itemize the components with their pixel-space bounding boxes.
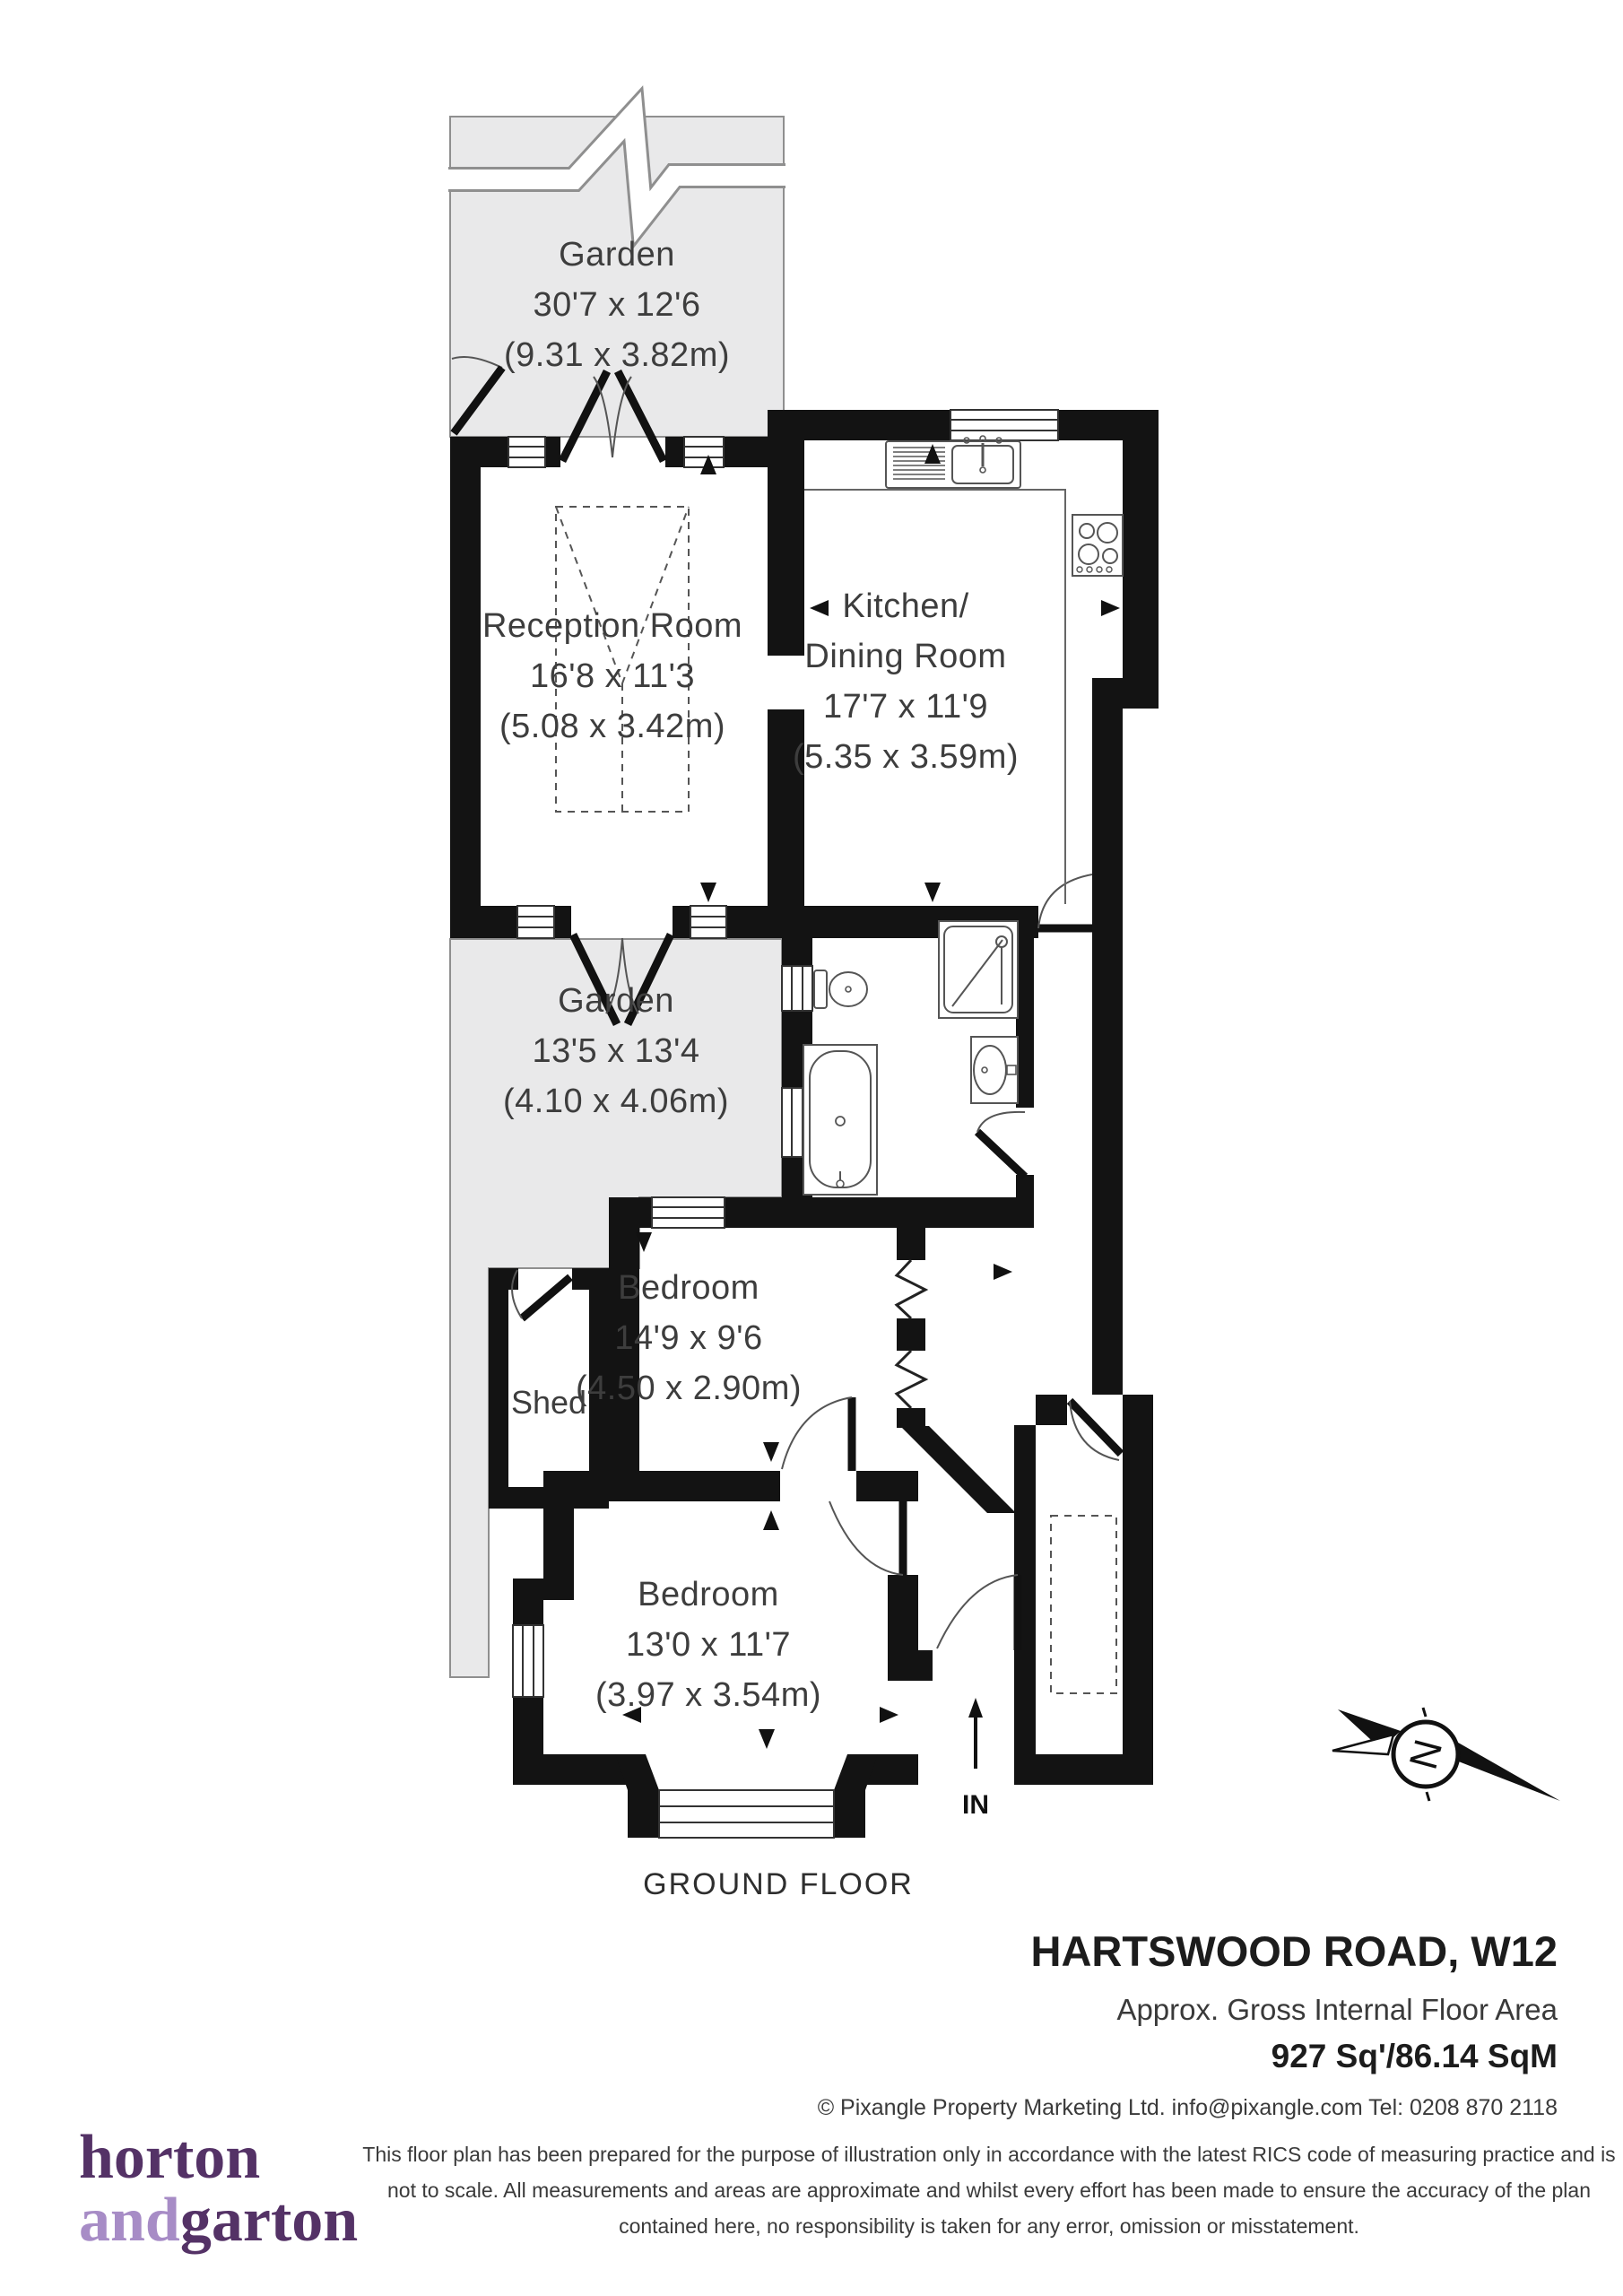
front-door — [1070, 1401, 1121, 1460]
disclaimer-line-1: This floor plan has been prepared for th… — [362, 2143, 1615, 2166]
address-title: HARTSWOOD ROAD, W12 — [1031, 1927, 1558, 1975]
bathroom-door — [977, 1112, 1025, 1177]
svg-text:13'0 x 11'7: 13'0 x 11'7 — [626, 1626, 791, 1664]
svg-text:(9.31 x 3.82m): (9.31 x 3.82m) — [504, 336, 730, 374]
svg-text:(5.08 x 3.42m): (5.08 x 3.42m) — [499, 708, 725, 745]
logo-word-garton: garton — [180, 2186, 358, 2255]
window — [517, 906, 554, 938]
svg-text:14'9 x 9'6: 14'9 x 9'6 — [614, 1319, 762, 1357]
logo-word-and: and — [79, 2186, 180, 2255]
window — [782, 966, 812, 1011]
basin-icon — [971, 1037, 1018, 1103]
disclaimer-line-3: contained here, no responsibility is tak… — [619, 2214, 1359, 2238]
disclaimer-line-2: not to scale. All measurements and areas… — [387, 2179, 1591, 2202]
sink-icon — [886, 436, 1020, 488]
hob-icon — [1072, 515, 1123, 576]
svg-text:Bedroom: Bedroom — [618, 1269, 759, 1307]
window — [513, 1625, 543, 1697]
entrance-in-marker: IN — [962, 1698, 989, 1820]
area-value: 927 Sq'/86.14 SqM — [1271, 2038, 1558, 2074]
svg-text:Bedroom: Bedroom — [638, 1576, 779, 1613]
window — [508, 437, 545, 467]
shed-door — [512, 1270, 570, 1318]
svg-text:13'5 x 13'4: 13'5 x 13'4 — [533, 1032, 700, 1070]
svg-text:16'8 x 11'3: 16'8 x 11'3 — [530, 657, 695, 695]
svg-text:(3.97 x 3.54m): (3.97 x 3.54m) — [595, 1676, 821, 1714]
svg-text:Garden: Garden — [559, 236, 675, 274]
svg-text:Kitchen/: Kitchen/ — [842, 587, 968, 625]
shower-icon — [939, 921, 1018, 1018]
bedroom2-door — [829, 1501, 903, 1575]
svg-text:andgarton: andgarton — [79, 2186, 358, 2255]
svg-text:(4.10 x 4.06m): (4.10 x 4.06m) — [503, 1083, 729, 1120]
compass-icon: N — [1332, 1708, 1560, 1801]
svg-text:Reception Room: Reception Room — [482, 607, 742, 645]
bedroom1-door — [782, 1397, 852, 1471]
toilet-icon — [814, 970, 867, 1008]
entrance-door — [937, 1575, 1018, 1650]
window — [684, 437, 724, 467]
svg-text:Garden: Garden — [558, 982, 674, 1020]
porch-dashed-box — [1051, 1516, 1116, 1693]
svg-text:Dining Room: Dining Room — [804, 638, 1006, 675]
in-arrow-icon — [968, 1698, 983, 1718]
logo-word-horton: horton — [79, 2123, 260, 2192]
window — [652, 1197, 725, 1228]
agency-logo: horton andgarton — [79, 2123, 358, 2255]
svg-text:30'7 x 12'6: 30'7 x 12'6 — [534, 286, 701, 324]
floor-label: GROUND FLOOR — [643, 1867, 914, 1901]
copyright-line: © Pixangle Property Marketing Ltd. info@… — [818, 2095, 1558, 2120]
window — [950, 410, 1058, 440]
in-label: IN — [962, 1790, 989, 1820]
kitchen-label: Kitchen/ Dining Room 17'7 x 11'9 (5.35 x… — [793, 587, 1019, 776]
garden-top-area — [448, 115, 785, 437]
reception-room-label: Reception Room 16'8 x 11'3 (5.08 x 3.42m… — [482, 607, 742, 745]
area-label: Approx. Gross Internal Floor Area — [1116, 1993, 1558, 2026]
bath-icon — [803, 1045, 877, 1195]
bedroom2-label: Bedroom 13'0 x 11'7 (3.97 x 3.54m) — [595, 1576, 821, 1714]
footer: HARTSWOOD ROAD, W12 Approx. Gross Intern… — [362, 1927, 1615, 2238]
svg-text:17'7 x 11'9: 17'7 x 11'9 — [823, 688, 988, 726]
svg-text:(5.35 x 3.59m): (5.35 x 3.59m) — [793, 738, 1019, 776]
window — [690, 906, 726, 938]
svg-text:(4.50 x 2.90m): (4.50 x 2.90m) — [576, 1370, 802, 1407]
bay-window — [659, 1790, 834, 1838]
